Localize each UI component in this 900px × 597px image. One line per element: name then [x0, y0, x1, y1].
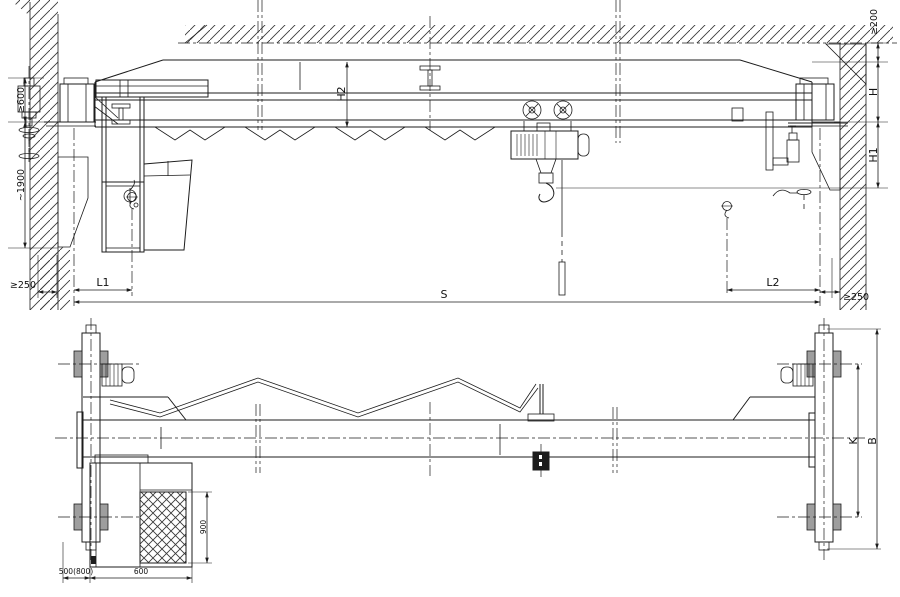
grid-lines-plan [256, 402, 617, 476]
left-wall-column [10, 0, 88, 310]
right-connection-plate [809, 413, 815, 467]
crane-drawing-svg: ≥600 ~1900 ≥250 L1 L2 S [0, 0, 900, 597]
left-end-truck [60, 78, 94, 122]
right-corbel [812, 122, 840, 190]
crane-drawing-sheet: ≥600 ~1900 ≥250 L1 L2 S [0, 0, 900, 597]
dim-min600: ≥600 [16, 87, 27, 113]
dim-min200: ≥200 [869, 9, 880, 35]
electric-hoist [511, 101, 589, 202]
ceiling [178, 25, 897, 43]
rope-guide [536, 159, 556, 173]
festoon-cable-plan [110, 378, 554, 421]
dim-min250-right: ≥250 [843, 292, 869, 303]
side-platform [144, 160, 192, 250]
dim-S: S [441, 288, 448, 301]
bridge-girder [95, 60, 812, 127]
dim-L1: L1 [96, 276, 109, 289]
dim-500-800: 500(800) [59, 567, 94, 576]
hoist-motor-body [511, 131, 589, 159]
right-end-truck [796, 78, 834, 120]
control-cabinet [94, 80, 208, 252]
rail-section-symbol [112, 104, 130, 124]
hook-lowest-position [559, 160, 565, 295]
runway-rails [44, 122, 848, 126]
dim-H2: H2 [335, 86, 348, 101]
left-corbel [58, 157, 88, 247]
trolley-wheel-right [554, 101, 572, 119]
dim-600: 600 [134, 567, 149, 576]
elevation-view: ≥600 ~1900 ≥250 L1 L2 S [8, 0, 897, 310]
mesh-panel [140, 492, 186, 563]
dim-B: B [866, 437, 879, 445]
dim-H1: H1 [867, 147, 880, 162]
dim-approx1900: ~1900 [16, 169, 27, 201]
girder-plan [55, 397, 866, 468]
left-end-carriage [58, 318, 140, 560]
hook-extreme-right [721, 202, 733, 219]
hook-extreme-left [126, 193, 138, 210]
hook-icon [539, 183, 554, 202]
buffer-stop [732, 108, 743, 121]
dim-min250-left: ≥250 [10, 280, 36, 291]
plan-view: 900 600 500(800) K B [55, 318, 881, 583]
dim-H: H [867, 88, 880, 96]
dim-900: 900 [199, 520, 208, 535]
festoon-cable-elevation [155, 127, 495, 140]
grid-lines-elevation [258, 0, 620, 143]
trolley-wheel-left [523, 101, 541, 119]
hook-block [539, 173, 553, 183]
pendant-station [533, 444, 549, 480]
dim-K: K [847, 437, 860, 445]
dim-L2: L2 [766, 276, 779, 289]
